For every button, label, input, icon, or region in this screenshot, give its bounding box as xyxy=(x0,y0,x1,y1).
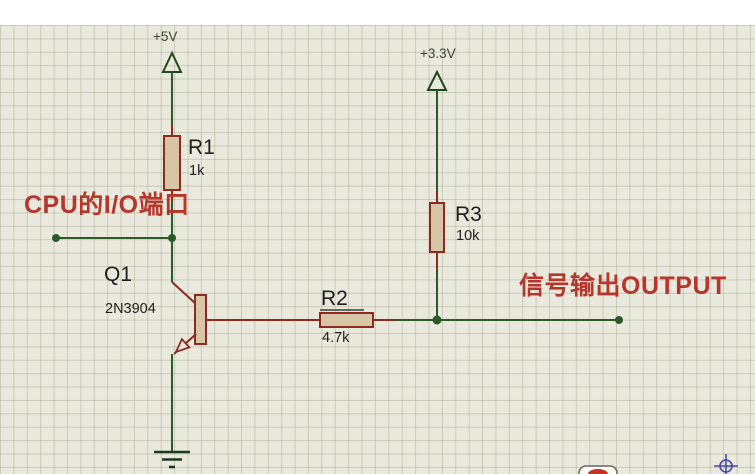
q1-base-bar xyxy=(195,295,206,344)
schematic-screenshot: +5V +3.3V R1 1k Q1 2N3904 R2 4.7k R3 10k… xyxy=(0,0,755,474)
power-symbol-5v[interactable] xyxy=(163,53,181,125)
output-node-wires[interactable] xyxy=(395,316,623,325)
r3-body xyxy=(430,203,444,252)
output-annotation[interactable]: 信号输出OUTPUT xyxy=(519,273,727,299)
r2-ref-label[interactable]: R2 xyxy=(321,288,348,310)
origin-marker-icon xyxy=(714,454,738,474)
r1-ref-label[interactable]: R1 xyxy=(188,137,215,159)
transistor-q1[interactable] xyxy=(172,282,320,354)
terminal-dot-cpu-io xyxy=(52,234,60,242)
watermark-partial xyxy=(579,466,617,474)
resistor-r3[interactable] xyxy=(430,191,444,320)
schematic-graphics xyxy=(0,0,755,474)
power-symbol-3v3[interactable] xyxy=(428,72,446,191)
power-arrow-up-icon xyxy=(163,53,181,72)
r3-ref-label[interactable]: R3 xyxy=(455,204,482,226)
r2-value-label[interactable]: 4.7k xyxy=(322,331,349,346)
r2-body xyxy=(320,313,373,327)
r1-value-label[interactable]: 1k xyxy=(189,164,204,179)
r1-body xyxy=(164,136,180,190)
terminal-dot-output xyxy=(615,316,623,324)
r3-value-label[interactable]: 10k xyxy=(456,229,479,244)
power-label-3v3[interactable]: +3.3V xyxy=(420,47,456,61)
resistor-r2[interactable] xyxy=(320,310,395,327)
q1-collector-pin xyxy=(172,282,196,304)
q1-part-label[interactable]: 2N3904 xyxy=(105,302,156,317)
q1-ref-label[interactable]: Q1 xyxy=(104,264,132,286)
power-label-5v[interactable]: +5V xyxy=(153,30,177,44)
power-arrow-up-icon xyxy=(428,72,446,90)
cpu-io-annotation[interactable]: CPU的I/O端口 xyxy=(24,192,190,218)
ground-symbol[interactable] xyxy=(154,452,190,467)
